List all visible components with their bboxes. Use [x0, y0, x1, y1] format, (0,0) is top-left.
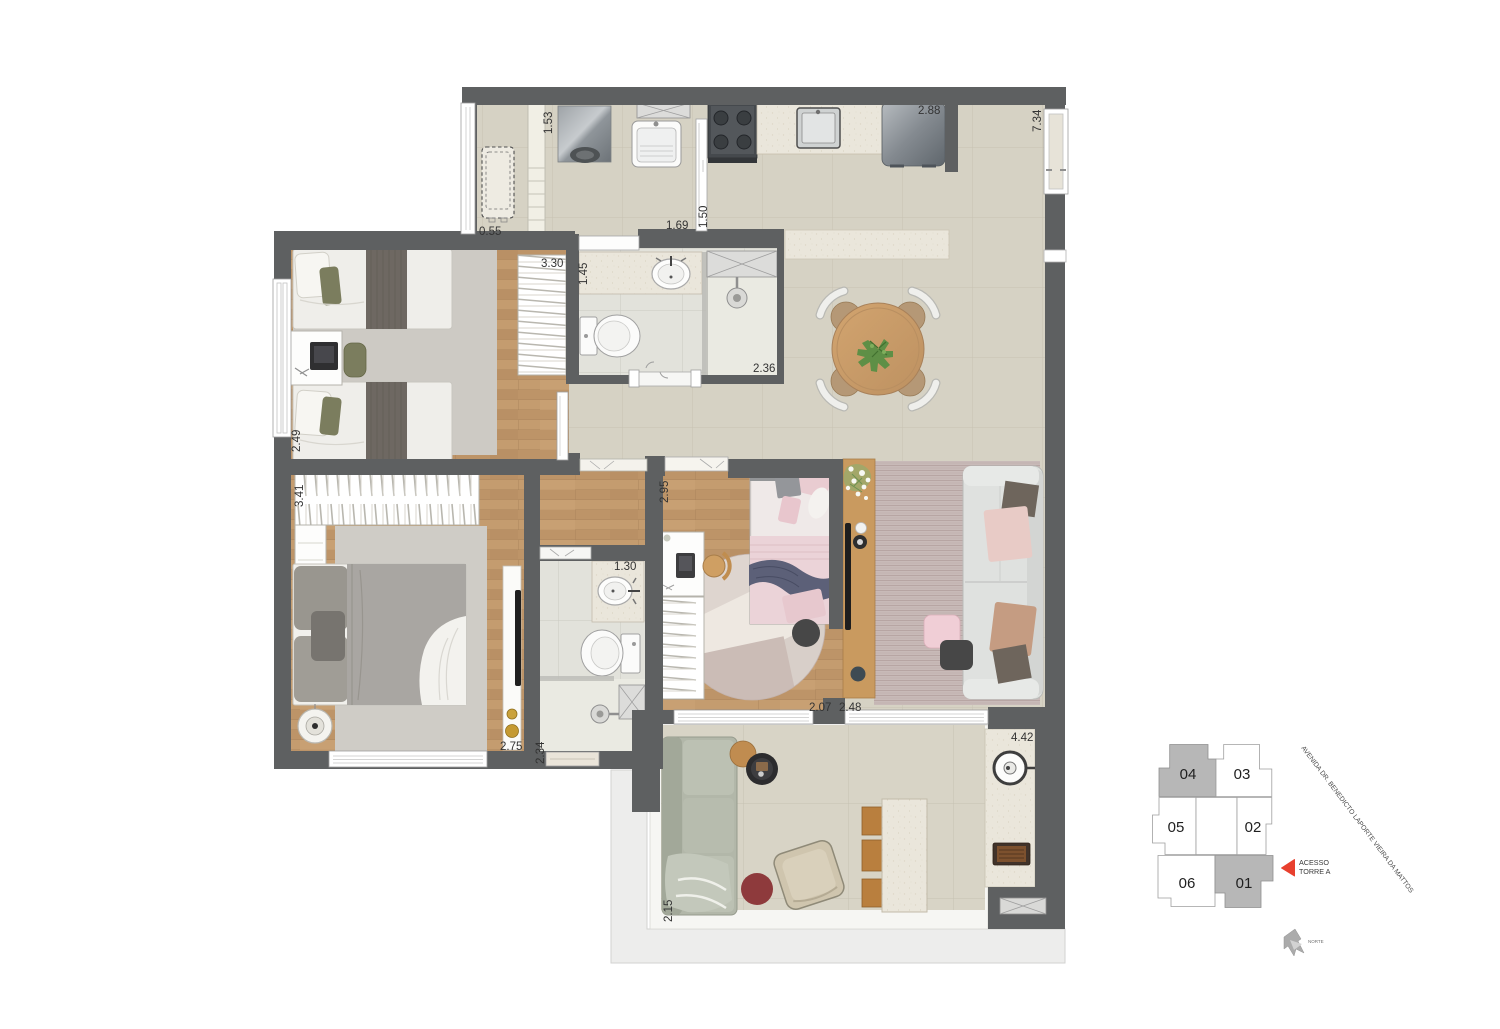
svg-text:1.50: 1.50: [698, 206, 710, 228]
svg-text:NORTE: NORTE: [1308, 939, 1324, 944]
svg-text:2.75: 2.75: [500, 741, 522, 753]
svg-text:3.30: 3.30: [541, 258, 563, 270]
svg-text:01: 01: [1236, 875, 1253, 892]
svg-text:2.07: 2.07: [809, 702, 831, 714]
svg-text:2.15: 2.15: [663, 900, 675, 922]
svg-text:03: 03: [1234, 766, 1251, 783]
svg-text:7.34: 7.34: [1032, 109, 1044, 132]
svg-text:4.42: 4.42: [1011, 732, 1033, 744]
svg-text:3.41: 3.41: [294, 485, 306, 507]
svg-text:2.95: 2.95: [659, 481, 671, 503]
svg-text:ACESSO: ACESSO: [1299, 858, 1329, 867]
svg-text:2.34: 2.34: [535, 741, 547, 764]
svg-text:2.48: 2.48: [839, 702, 861, 714]
svg-text:1.69: 1.69: [666, 220, 688, 232]
svg-text:1.53: 1.53: [543, 112, 555, 134]
svg-text:1.45: 1.45: [578, 263, 590, 285]
svg-text:TORRE A: TORRE A: [1299, 867, 1331, 876]
svg-text:1.30: 1.30: [614, 561, 636, 573]
svg-text:2.88: 2.88: [918, 105, 940, 117]
svg-text:0.55: 0.55: [479, 226, 501, 238]
svg-text:02: 02: [1245, 819, 1262, 836]
svg-text:04: 04: [1180, 766, 1197, 783]
svg-text:2.49: 2.49: [291, 430, 303, 452]
svg-text:2.36: 2.36: [753, 363, 775, 375]
svg-text:06: 06: [1179, 875, 1196, 892]
svg-text:05: 05: [1168, 819, 1185, 836]
